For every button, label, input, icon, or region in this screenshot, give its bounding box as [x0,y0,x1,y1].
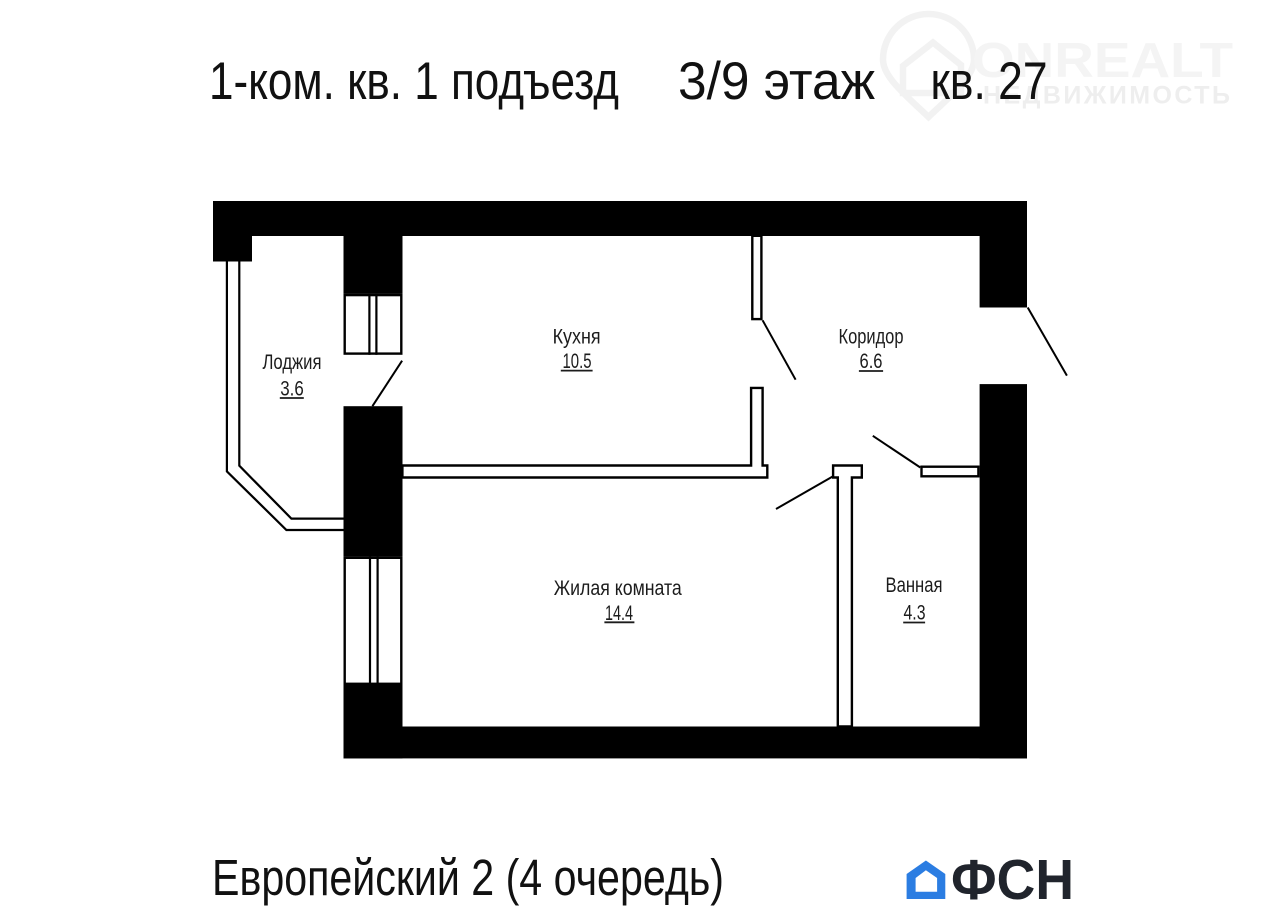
svg-text:ФСН: ФСН [951,848,1074,910]
svg-text:Жилая комната: Жилая комната [554,576,682,600]
svg-text:10.5: 10.5 [563,349,592,373]
svg-text:4.3: 4.3 [904,601,926,625]
svg-text:Ванная: Ванная [886,573,943,597]
svg-text:Лоджия: Лоджия [263,350,322,374]
svg-text:3/9 этаж: 3/9 этаж [678,52,875,111]
svg-text:1-ком. кв. 1 подъезд: 1-ком. кв. 1 подъезд [209,52,619,111]
svg-text:Кухня: Кухня [553,325,601,349]
svg-text:кв. 27: кв. 27 [931,52,1048,111]
svg-text:3.6: 3.6 [280,377,304,401]
svg-text:Коридор: Коридор [839,325,904,349]
svg-text:6.6: 6.6 [860,349,883,373]
svg-text:Европейский 2 (4 очередь): Европейский 2 (4 очередь) [212,849,724,906]
